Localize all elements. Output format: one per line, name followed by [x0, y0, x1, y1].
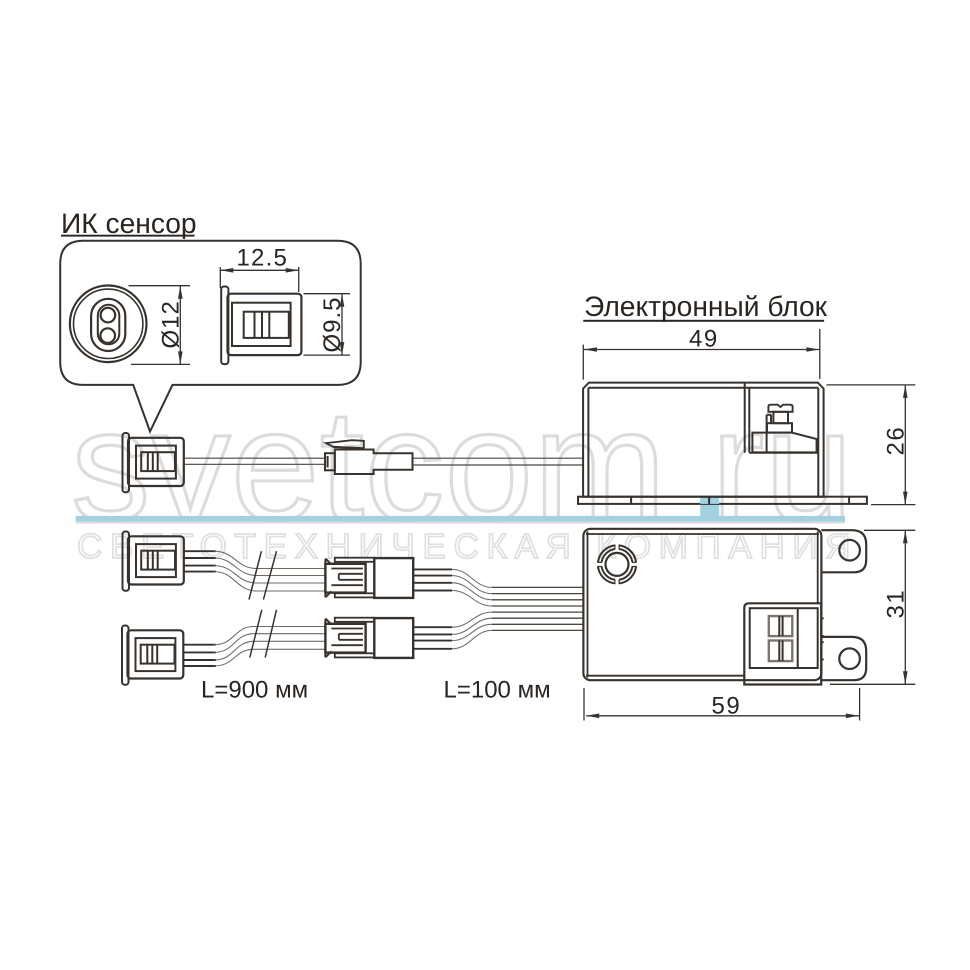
svg-text:Ø12: Ø12 [158, 300, 185, 348]
svg-text:L=100 мм: L=100 мм [444, 677, 551, 704]
svg-text:L=900 мм: L=900 мм [201, 677, 308, 704]
svg-text:31: 31 [883, 589, 910, 619]
svg-text:СВЕТОТЕХНИЧЕСКАЯ КОМПАНИЯ: СВЕТОТЕХНИЧЕСКАЯ КОМПАНИЯ [77, 527, 858, 566]
svg-text:Электронный блок: Электронный блок [584, 290, 828, 322]
svg-text:59: 59 [712, 693, 742, 720]
svg-text:26: 26 [883, 426, 910, 456]
svg-text:12.5: 12.5 [237, 245, 289, 272]
svg-text:Ø9.5: Ø9.5 [319, 296, 346, 352]
svg-text:ИК сенсор: ИК сенсор [61, 207, 197, 239]
svg-text:49: 49 [689, 326, 719, 353]
